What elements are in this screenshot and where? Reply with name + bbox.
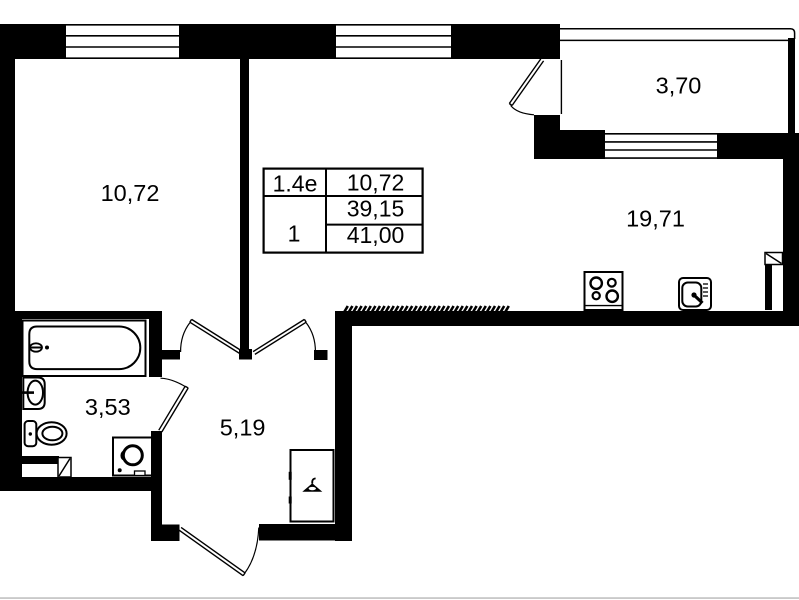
svg-text:1.4е: 1.4е: [273, 170, 318, 196]
svg-text:41,00: 41,00: [347, 222, 405, 248]
svg-text:10,72: 10,72: [347, 170, 405, 196]
svg-text:3,53: 3,53: [85, 394, 131, 420]
svg-text:5,19: 5,19: [220, 415, 266, 441]
svg-text:3,70: 3,70: [656, 73, 702, 99]
svg-text:19,71: 19,71: [626, 205, 685, 231]
svg-text:39,15: 39,15: [347, 196, 405, 222]
svg-text:1: 1: [288, 220, 301, 246]
svg-text:10,72: 10,72: [101, 180, 160, 206]
